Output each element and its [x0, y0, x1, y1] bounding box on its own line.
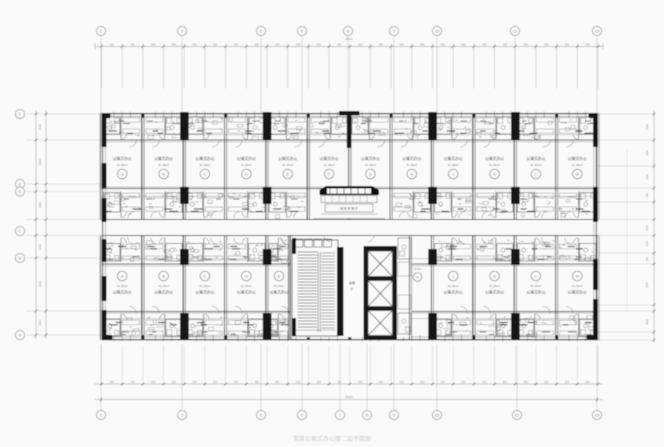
svg-text:某某公寓式办公楼二层平面图: 某某公寓式办公楼二层平面图: [293, 435, 371, 443]
svg-text:41.30m²: 41.30m²: [158, 163, 169, 167]
svg-text:41.30m²: 41.30m²: [273, 284, 284, 288]
svg-text:J: J: [452, 275, 454, 279]
svg-text:公寓式办公: 公寓式办公: [361, 156, 380, 161]
svg-text:公寓式办公: 公寓式办公: [402, 156, 421, 161]
svg-text:320: 320: [316, 42, 321, 46]
svg-text:500: 500: [213, 380, 218, 384]
svg-text:2900: 2900: [645, 282, 649, 288]
svg-text:公寓式办公: 公寓式办公: [526, 156, 545, 161]
svg-text:2400: 2400: [38, 320, 42, 326]
svg-text:公寓式办公: 公寓式办公: [195, 156, 214, 161]
svg-text:320: 320: [399, 380, 404, 384]
svg-text:公寓式办公: 公寓式办公: [195, 290, 214, 295]
svg-text:公寓式办公: 公寓式办公: [113, 290, 132, 295]
svg-text:360: 360: [254, 380, 259, 384]
svg-text:J: J: [452, 173, 454, 177]
svg-text:41.30m²: 41.30m²: [572, 284, 583, 288]
svg-text:320: 320: [565, 380, 570, 384]
svg-text:330: 330: [254, 42, 259, 46]
svg-text:电梯: 电梯: [349, 280, 355, 285]
svg-text:500: 500: [399, 42, 404, 46]
svg-text:41.30m²: 41.30m²: [117, 284, 128, 288]
svg-text:2000: 2000: [645, 319, 649, 325]
svg-text:320: 320: [192, 380, 197, 384]
svg-text:41.30m²: 41.30m²: [489, 284, 500, 288]
svg-text:350: 350: [296, 42, 301, 46]
svg-text:公寓式办公: 公寓式办公: [485, 156, 504, 161]
svg-text:G: G: [369, 173, 372, 177]
svg-text:41.30m²: 41.30m²: [199, 284, 210, 288]
svg-text:360: 360: [379, 380, 384, 384]
svg-text:公寓式办公: 公寓式办公: [485, 290, 504, 295]
svg-text:330: 330: [337, 380, 342, 384]
svg-text:A: A: [19, 333, 22, 338]
svg-text:2000: 2000: [645, 225, 649, 231]
svg-text:公寓式办公: 公寓式办公: [154, 290, 173, 295]
svg-text:350: 350: [358, 42, 363, 46]
svg-text:厅: 厅: [350, 287, 353, 291]
svg-text:41.30m²: 41.30m²: [199, 163, 210, 167]
svg-text:41.30m²: 41.30m²: [406, 163, 417, 167]
svg-text:320: 320: [482, 380, 487, 384]
svg-text:350: 350: [420, 380, 425, 384]
svg-text:330: 330: [110, 42, 115, 46]
svg-text:41.30m²: 41.30m²: [365, 163, 376, 167]
svg-text:消 防 电 梯 厅: 消 防 电 梯 厅: [340, 206, 358, 211]
svg-text:49800: 49800: [345, 395, 353, 399]
svg-text:M: M: [576, 275, 579, 279]
svg-text:10: 10: [435, 413, 440, 418]
svg-text:12: 12: [515, 413, 520, 418]
svg-text:330: 330: [461, 380, 466, 384]
svg-text:E: E: [19, 182, 22, 187]
svg-text:350: 350: [585, 42, 590, 46]
svg-text:公寓式办公: 公寓式办公: [154, 156, 173, 161]
svg-text:5300: 5300: [38, 281, 42, 287]
svg-text:公寓式办公: 公寓式办公: [270, 290, 289, 295]
svg-text:公寓式办公: 公寓式办公: [320, 156, 339, 161]
svg-text:350: 350: [379, 42, 384, 46]
svg-text:4400: 4400: [38, 159, 42, 165]
svg-text:1450: 1450: [38, 244, 42, 250]
svg-text:360: 360: [110, 380, 115, 384]
svg-text:2550: 2550: [645, 124, 649, 130]
svg-text:41.30m²: 41.30m²: [489, 163, 500, 167]
svg-text:500: 500: [151, 42, 156, 46]
svg-text:360: 360: [461, 42, 466, 46]
svg-text:350: 350: [234, 380, 239, 384]
svg-text:350: 350: [192, 42, 197, 46]
svg-text:41.30m²: 41.30m²: [324, 163, 335, 167]
svg-text:1500: 1500: [645, 174, 649, 180]
svg-text:360: 360: [130, 42, 135, 46]
svg-text:350: 350: [482, 42, 487, 46]
svg-text:320: 320: [441, 380, 446, 384]
svg-text:D: D: [19, 189, 22, 194]
svg-text:360: 360: [316, 380, 321, 384]
svg-text:公寓式办公: 公寓式办公: [568, 156, 587, 161]
svg-text:2550: 2550: [38, 124, 42, 130]
svg-text:L: L: [535, 173, 537, 177]
svg-text:41.30m²: 41.30m²: [241, 284, 252, 288]
svg-text:12: 12: [513, 29, 518, 34]
svg-text:14: 14: [595, 29, 600, 34]
svg-text:350: 350: [234, 42, 239, 46]
svg-text:41.30m²: 41.30m²: [530, 284, 541, 288]
svg-text:公寓式办公: 公寓式办公: [444, 290, 463, 295]
svg-text:41.30m²: 41.30m²: [448, 163, 459, 167]
svg-text:320: 320: [565, 42, 570, 46]
svg-text:320: 320: [544, 380, 549, 384]
svg-text:F: F: [328, 173, 330, 177]
svg-text:49800: 49800: [345, 37, 353, 41]
svg-text:M: M: [576, 173, 579, 177]
svg-text:350: 350: [544, 42, 549, 46]
svg-text:公寓式办公: 公寓式办公: [278, 156, 297, 161]
svg-text:10: 10: [435, 29, 440, 34]
svg-text:320: 320: [275, 42, 280, 46]
svg-text:360: 360: [337, 42, 342, 46]
svg-text:500: 500: [420, 42, 425, 46]
svg-text:1100: 1100: [645, 241, 649, 247]
svg-text:L: L: [535, 275, 537, 279]
svg-text:320: 320: [503, 42, 508, 46]
svg-text:350: 350: [441, 42, 446, 46]
svg-text:350: 350: [151, 380, 156, 384]
svg-text:2800: 2800: [38, 202, 42, 208]
svg-text:公寓式办公: 公寓式办公: [113, 156, 132, 161]
svg-text:900: 900: [645, 192, 649, 197]
svg-text:14: 14: [595, 413, 600, 418]
svg-text:公寓式办公: 公寓式办公: [568, 290, 587, 295]
svg-text:41.30m²: 41.30m²: [282, 163, 293, 167]
svg-text:350: 350: [523, 380, 528, 384]
svg-text:360: 360: [503, 380, 508, 384]
svg-text:320: 320: [213, 42, 218, 46]
svg-text:41.30m²: 41.30m²: [158, 284, 169, 288]
svg-text:G: G: [416, 276, 419, 280]
svg-text:公寓式办公: 公寓式办公: [237, 156, 256, 161]
svg-text:公寓式办公: 公寓式办公: [237, 290, 256, 295]
svg-text:41.30m²: 41.30m²: [448, 284, 459, 288]
svg-text:公寓式办公: 公寓式办公: [444, 156, 463, 161]
svg-text:41.30m²: 41.30m²: [117, 163, 128, 167]
svg-text:41.30m²: 41.30m²: [572, 163, 583, 167]
svg-text:320: 320: [172, 380, 177, 384]
svg-text:320: 320: [296, 380, 301, 384]
svg-text:公寓式办公: 公寓式办公: [526, 290, 545, 295]
svg-text:B: B: [19, 256, 22, 261]
svg-text:21.5m²: 21.5m²: [413, 267, 421, 271]
svg-text:C: C: [19, 229, 22, 234]
svg-text:41.30m²: 41.30m²: [530, 163, 541, 167]
svg-text:360: 360: [585, 380, 590, 384]
svg-text:500: 500: [358, 380, 363, 384]
svg-text:800: 800: [645, 256, 649, 261]
svg-text:500: 500: [523, 42, 528, 46]
svg-text:350: 350: [275, 380, 280, 384]
svg-text:1800: 1800: [645, 150, 649, 156]
svg-text:320: 320: [130, 380, 135, 384]
svg-text:41.30m²: 41.30m²: [241, 163, 252, 167]
svg-text:350: 350: [172, 42, 177, 46]
